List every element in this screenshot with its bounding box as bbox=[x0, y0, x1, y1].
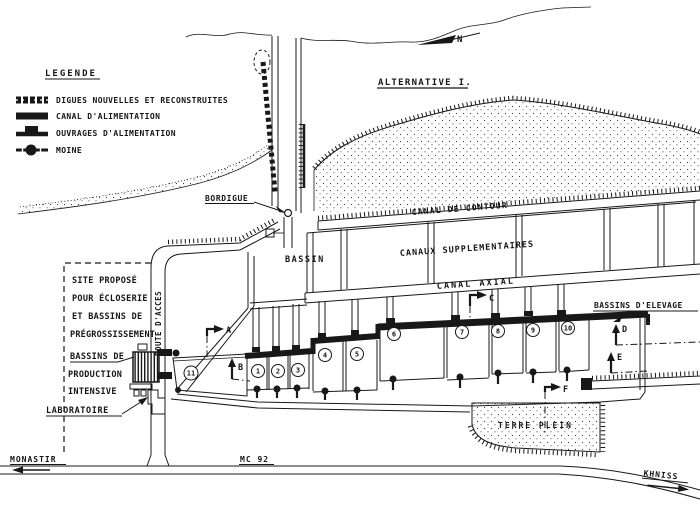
section-mark-d: D bbox=[612, 324, 700, 345]
laboratoire-label: LABORATOIRE bbox=[46, 406, 109, 416]
legend-item-dikes: DIGUES NOUVELLES ET RECONSTRUITES bbox=[56, 96, 228, 105]
basin-number-5: 5 bbox=[351, 348, 364, 361]
legend: LEGENDE DIGUES NOUVELLES ET RECONSTRUITE… bbox=[16, 69, 228, 156]
north-label: N bbox=[457, 35, 462, 45]
basin-number-11: 11 bbox=[184, 366, 198, 380]
basin-number-2: 2 bbox=[272, 365, 285, 378]
dike-and-access-road: ROUTE D'ACCES bbox=[151, 219, 280, 455]
svg-text:D: D bbox=[622, 325, 627, 335]
road-name-mc92: MC 92 bbox=[240, 455, 269, 464]
svg-text:7: 7 bbox=[460, 329, 464, 337]
road-mc92: MONASTIR MC 92 KHNISS bbox=[0, 455, 700, 499]
svg-text:11: 11 bbox=[187, 370, 195, 378]
laboratoire-leader-arrow bbox=[138, 397, 148, 405]
canal-axial-label: CANAL AXIAL bbox=[437, 277, 516, 292]
bassin-label: BASSIN bbox=[285, 255, 325, 265]
production-note: BASSINS DE PRODUCTION INTENSIVE bbox=[68, 352, 134, 397]
svg-text:BASSINS DE: BASSINS DE bbox=[70, 352, 124, 362]
svg-text:5: 5 bbox=[355, 351, 359, 359]
plan-title: ALTERNATIVE I. bbox=[377, 78, 472, 88]
basin-number-1: 1 bbox=[252, 365, 265, 378]
svg-text:C: C bbox=[489, 294, 494, 304]
intensive-basins-block bbox=[130, 344, 159, 396]
svg-text:BASSINS D'ELEVAGE: BASSINS D'ELEVAGE bbox=[594, 301, 683, 310]
basin-number-9: 9 bbox=[527, 324, 540, 337]
section-mark-e: E bbox=[607, 352, 648, 373]
feeder-channels bbox=[253, 284, 564, 349]
svg-text:E: E bbox=[617, 353, 622, 363]
legend-item-ouvrages: OUVRAGES D'ALIMENTATION bbox=[56, 129, 176, 138]
svg-text:ET BASSINS DE: ET BASSINS DE bbox=[72, 312, 142, 322]
legend-item-moine: MOINE bbox=[56, 146, 82, 155]
route-acces-label: ROUTE D'ACCES bbox=[154, 291, 163, 356]
monastir-direction-arrow bbox=[12, 467, 50, 474]
terre-plein: TERRE PLEIN bbox=[470, 403, 603, 455]
svg-text:F: F bbox=[563, 385, 568, 395]
svg-text:B: B bbox=[238, 363, 243, 373]
svg-text:PRODUCTION: PRODUCTION bbox=[68, 370, 122, 380]
svg-text:POUR ÉCLOSERIE: POUR ÉCLOSERIE bbox=[72, 292, 148, 304]
north-arrow-icon: N bbox=[417, 33, 480, 45]
site-plan-sheet: LEGENDE DIGUES NOUVELLES ET RECONSTRUITE… bbox=[0, 0, 700, 510]
svg-text:9: 9 bbox=[531, 327, 535, 335]
sea-channel bbox=[272, 36, 301, 213]
hill-area bbox=[314, 98, 700, 212]
coastline bbox=[186, 7, 591, 43]
svg-text:INTENSIVE: INTENSIVE bbox=[68, 387, 117, 397]
section-mark-c: C bbox=[470, 291, 494, 318]
svg-text:10: 10 bbox=[564, 325, 572, 333]
legend-moine-symbol bbox=[16, 145, 48, 156]
legend-ouvrage-symbol bbox=[16, 126, 48, 134]
svg-text:3: 3 bbox=[296, 367, 300, 375]
bordigue-label: BORDIGUE bbox=[205, 194, 248, 203]
svg-text:6: 6 bbox=[392, 331, 396, 339]
basin-number-3: 3 bbox=[292, 364, 305, 377]
terre-plein-label: TERRE PLEIN bbox=[498, 421, 573, 430]
site-plan-drawing: LEGENDE DIGUES NOUVELLES ET RECONSTRUITE… bbox=[0, 0, 700, 510]
canal-axial: CANAL AXIAL bbox=[305, 264, 700, 303]
supply-road-crossings bbox=[157, 349, 181, 393]
basin-number-4: 4 bbox=[319, 349, 332, 362]
basin-number-8: 8 bbox=[492, 325, 505, 338]
svg-text:PRÉGROSSISSEMENT: PRÉGROSSISSEMENT bbox=[70, 328, 155, 340]
svg-text:SITE PROPOSÉ: SITE PROPOSÉ bbox=[72, 274, 137, 286]
basin-number-7: 7 bbox=[456, 326, 469, 339]
svg-text:ALTERNATIVE I.: ALTERNATIVE I. bbox=[378, 78, 472, 88]
road-dest-monastir: MONASTIR bbox=[10, 455, 57, 464]
canaux-supplementaires-label: CANAUX SUPPLEMENTAIRES bbox=[400, 240, 535, 259]
road-dest-khniss-group: KHNISS bbox=[641, 469, 691, 493]
svg-text:1: 1 bbox=[256, 368, 260, 376]
bordigue: BORDIGUE bbox=[205, 194, 292, 248]
svg-text:8: 8 bbox=[496, 328, 500, 336]
legend-title: LEGENDE bbox=[45, 69, 97, 79]
road-dest-khniss: KHNISS bbox=[643, 469, 679, 482]
site-note: SITE PROPOSÉ POUR ÉCLOSERIE ET BASSINS D… bbox=[70, 274, 155, 340]
svg-text:4: 4 bbox=[323, 352, 327, 360]
svg-text:2: 2 bbox=[276, 368, 280, 376]
basin-number-6: 6 bbox=[388, 328, 401, 341]
basin-number-10: 10 bbox=[562, 322, 575, 335]
svg-text:A: A bbox=[226, 326, 231, 336]
legend-item-canal: CANAL D'ALIMENTATION bbox=[56, 112, 160, 121]
